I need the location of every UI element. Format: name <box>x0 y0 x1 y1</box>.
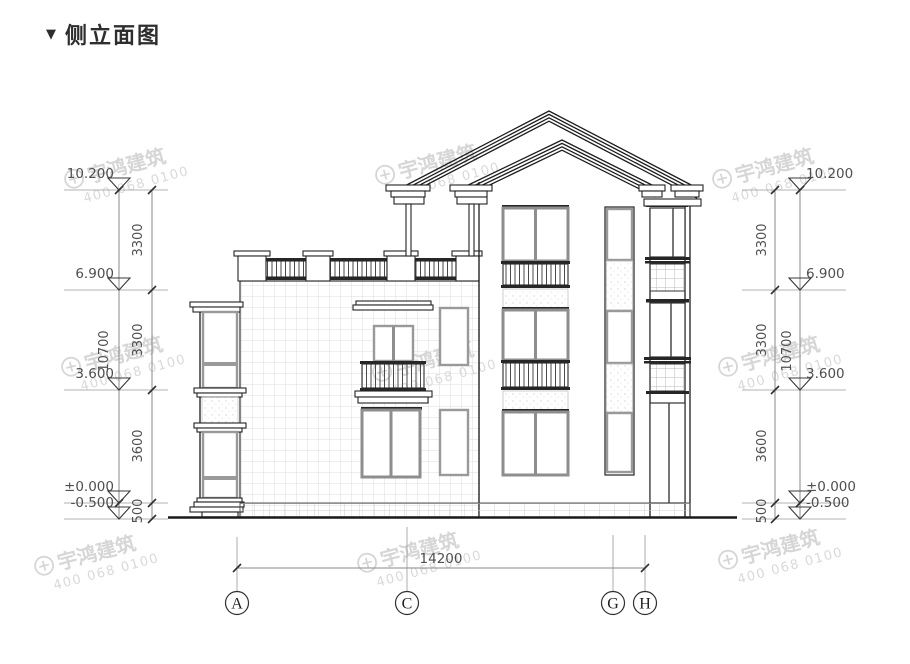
building-elevation <box>168 111 737 518</box>
watermark: 宇鸿建筑 400 068 0100 <box>33 526 161 597</box>
axis-bubble-label: H <box>639 596 651 613</box>
elevation-label: 3.600 <box>806 366 845 382</box>
balcony-railing <box>503 363 568 387</box>
tower <box>479 182 691 517</box>
watermark-logo-icon <box>361 557 373 569</box>
axis-bubble-label: A <box>231 596 243 613</box>
window <box>203 312 237 388</box>
canopy-band <box>356 301 431 305</box>
floor-height-label: 3300 <box>131 223 146 256</box>
watermark-logo-icon <box>716 173 728 185</box>
eave-post <box>469 204 474 256</box>
watermark: 宇鸿建筑 400 068 0100 <box>60 327 188 398</box>
window <box>650 403 685 503</box>
elevation-label: ±0.000 <box>64 479 114 495</box>
glass-block-panel <box>650 364 685 391</box>
window <box>650 208 685 257</box>
strip-window <box>605 207 634 475</box>
floor-height-label: 3300 <box>131 323 146 356</box>
width-label: 14200 <box>420 551 463 567</box>
axis-bubble-label: G <box>607 596 619 613</box>
window <box>203 432 237 498</box>
elevation-label: ±0.000 <box>806 479 856 495</box>
elevation-label: 10.200 <box>806 166 853 182</box>
eave-post <box>406 204 411 256</box>
floor-height-label: 3600 <box>131 429 146 462</box>
elevation-drawing: 宇鸿建筑 400 068 0100 宇鸿建筑 400 068 0100 宇鸿建筑… <box>0 0 910 664</box>
elevation-label: 6.900 <box>75 266 114 282</box>
window <box>650 303 685 357</box>
watermark: 宇鸿建筑 400 068 0100 <box>717 520 845 591</box>
glass-block-panel <box>650 264 685 291</box>
slit-window <box>440 308 468 365</box>
balcony-railing <box>362 364 424 388</box>
balcony-base <box>355 391 432 397</box>
balcony-base <box>358 397 428 403</box>
total-height-label: 10700 <box>97 330 112 371</box>
ground-plinth <box>168 503 737 518</box>
bay-window-column <box>190 302 246 517</box>
elevation-label: 6.900 <box>806 266 845 282</box>
elevation-label: -0.500 <box>70 495 114 511</box>
elevation-sheet: ▼ 侧立面图 宇鸿建筑 <box>0 0 910 664</box>
watermark-logo-icon <box>379 169 391 181</box>
left-wing <box>234 251 482 517</box>
stair-column <box>644 204 691 517</box>
balcony-railing <box>503 264 568 285</box>
axis-bubble-label: C <box>402 596 413 613</box>
floor-height-label: 500 <box>131 499 146 524</box>
axis-bubbles: A C G H <box>226 592 657 615</box>
elevation-label: -0.500 <box>806 495 850 511</box>
floor-height-label: 3600 <box>755 429 770 462</box>
floor-height-label: 3300 <box>755 323 770 356</box>
elevation-label: 10.200 <box>67 166 114 182</box>
floor-height-label: 3300 <box>755 223 770 256</box>
watermark-logo-icon <box>722 554 734 566</box>
watermark-logo-icon <box>38 560 50 572</box>
canopy-band <box>353 305 433 310</box>
watermark-logo-icon <box>722 361 734 373</box>
floor-height-label: 500 <box>755 499 770 524</box>
slit-window <box>440 410 468 475</box>
total-height-label: 10700 <box>780 330 795 371</box>
